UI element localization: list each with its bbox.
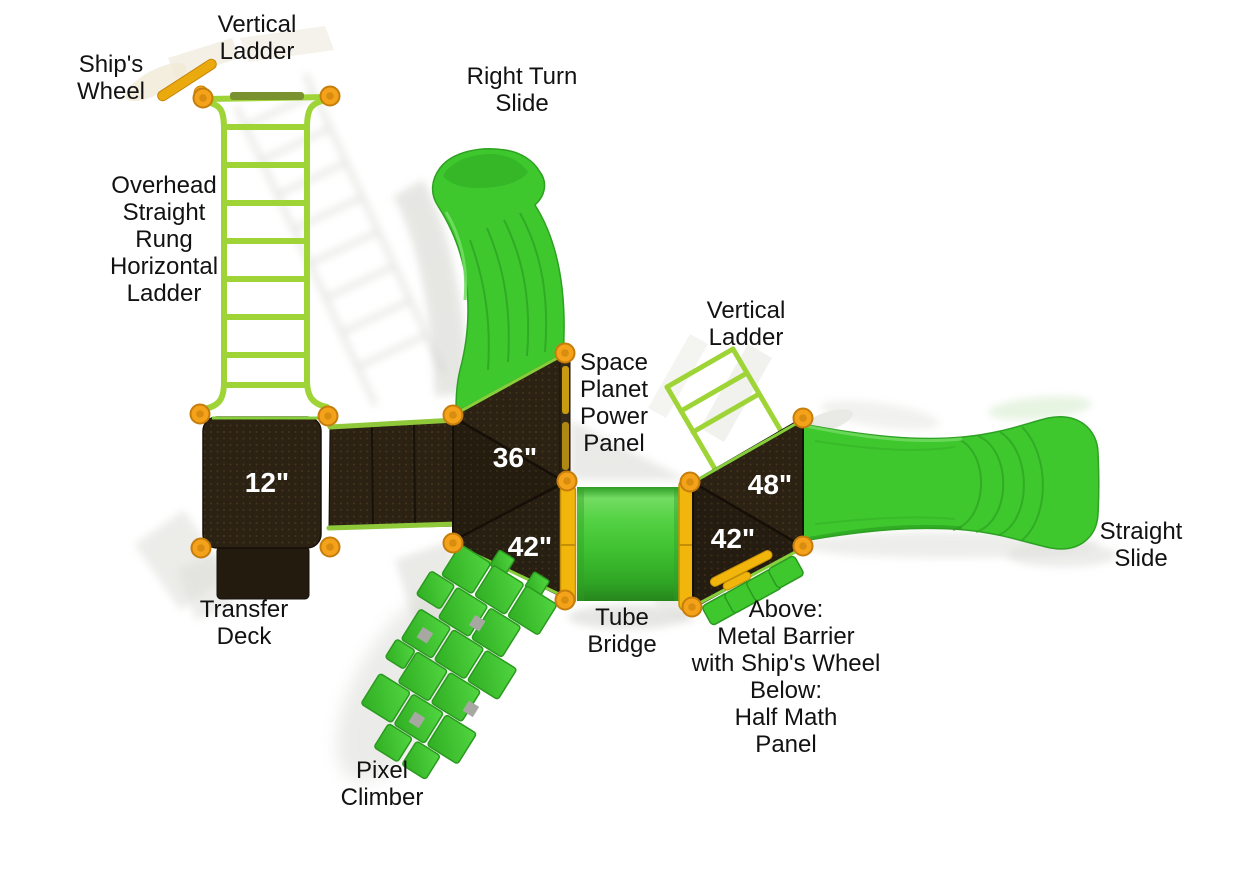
label-pixel-climber: Pixel Climber: [341, 757, 424, 811]
deck-height-center-upper: 36": [493, 442, 537, 473]
playground-diagram: 12" 36" 42" 48" 42" Vertical Ladder Ship…: [0, 0, 1235, 872]
ladder-top-bar: [230, 92, 304, 100]
label-transfer-deck: Transfer Deck: [200, 596, 288, 650]
deck-height-right-lower: 42": [711, 523, 755, 554]
label-right-turn-slide: Right Turn Slide: [467, 63, 578, 117]
label-vertical-ladder-left: Vertical Ladder: [218, 11, 297, 65]
stairs: [329, 421, 457, 529]
label-space-planet-power-panel: Space Planet Power Panel: [580, 349, 648, 457]
label-tube-bridge: Tube Bridge: [587, 604, 656, 658]
deck-height-right-upper: 48": [748, 469, 792, 500]
label-vertical-ladder-right: Vertical Ladder: [707, 297, 786, 351]
space-planet-power-panel: [560, 358, 570, 478]
right-deck: [693, 418, 804, 626]
straight-slide: [803, 417, 1099, 549]
deck-height-transfer: 12": [245, 467, 289, 498]
label-overhead-straight-rung-horizontal-ladder: Overhead Straight Rung Horizontal Ladder: [110, 172, 218, 307]
label-ships-wheel: Ship's Wheel: [77, 51, 145, 105]
label-straight-slide: Straight Slide: [1100, 518, 1183, 572]
tube-bridge: [561, 479, 695, 611]
deck-height-center-lower: 42": [508, 531, 552, 562]
overhead-horizontal-ladder: [204, 97, 328, 409]
label-barrier-note: Above: Metal Barrier with Ship's Wheel B…: [692, 596, 881, 758]
transfer-step: [217, 547, 309, 599]
